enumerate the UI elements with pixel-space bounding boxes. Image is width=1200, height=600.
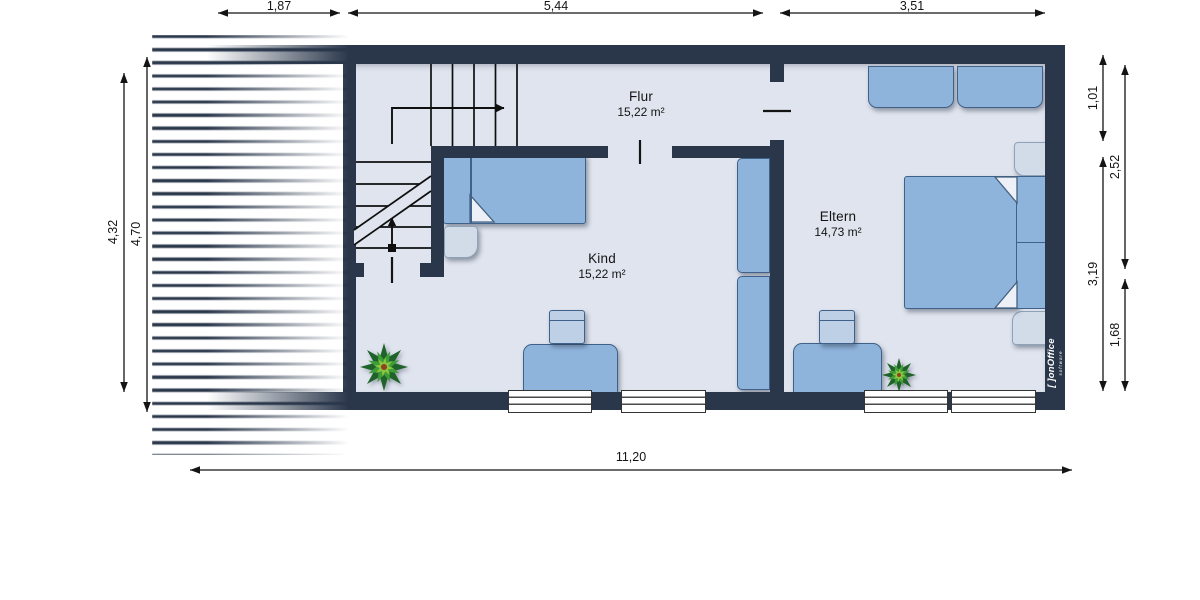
room-area: 14,73 m² xyxy=(814,225,861,239)
nightstand-eltern-top xyxy=(1014,142,1046,176)
nightstand-kind xyxy=(444,226,478,258)
wall-stair-right xyxy=(431,146,444,277)
dim-label-top-3: 3,51 xyxy=(900,0,924,13)
dim-label-right-4: 1,68 xyxy=(1108,323,1122,347)
wardrobe-kind-2 xyxy=(737,276,770,390)
dim-label-right-3: 3,19 xyxy=(1086,262,1100,286)
dim-label-right-1: 1,01 xyxy=(1086,86,1100,110)
plant-kind xyxy=(360,343,408,391)
chair-eltern-backrest xyxy=(820,320,854,321)
room-name: Eltern xyxy=(814,209,861,224)
wall-flur-eltern-stub xyxy=(770,64,784,82)
wardrobe-eltern-2 xyxy=(957,66,1043,108)
onoffice-logo-tagline: software xyxy=(1056,323,1066,403)
bed-kind xyxy=(443,154,586,224)
bed-eltern-pillows xyxy=(904,176,1046,309)
floor-plan-canvas: Flur 15,22 m² Kind 15,22 m² Eltern 14,73… xyxy=(0,0,1200,600)
dim-label-bottom-1: 11,20 xyxy=(616,450,646,464)
dim-label-top-1: 1,87 xyxy=(267,0,291,13)
room-name: Kind xyxy=(578,251,625,266)
window-eltern-2 xyxy=(951,390,1036,413)
window-kind-2 xyxy=(621,390,706,413)
bed-kind-head-divider xyxy=(470,155,472,223)
wall-flur-kind-left xyxy=(431,146,608,158)
desk-kind xyxy=(523,344,618,393)
desk-eltern xyxy=(793,343,882,393)
wall-stair-left xyxy=(343,64,356,392)
room-label-eltern: Eltern 14,73 m² xyxy=(814,209,861,239)
room-area: 15,22 m² xyxy=(617,105,664,119)
onoffice-logo: [ ]onOffice software xyxy=(1045,323,1065,403)
bed-eltern xyxy=(904,176,1046,309)
dim-label-right-2: 2,52 xyxy=(1108,155,1122,179)
wall-kind-eltern xyxy=(770,140,784,392)
plant-eltern xyxy=(882,358,916,392)
wardrobe-eltern-1 xyxy=(868,66,954,108)
room-label-flur: Flur 15,22 m² xyxy=(617,89,664,119)
wall-stair-door-left xyxy=(343,263,364,277)
chair-kind-backrest xyxy=(550,320,584,321)
room-area: 15,22 m² xyxy=(578,267,625,281)
chair-kind xyxy=(549,310,585,344)
dim-label-left-2: 4,70 xyxy=(129,222,143,246)
chair-eltern xyxy=(819,310,855,344)
window-eltern-1 xyxy=(864,390,948,413)
room-label-kind: Kind 15,22 m² xyxy=(578,251,625,281)
wall-flur-kind-right xyxy=(672,146,784,158)
wall-stair-door-right xyxy=(420,263,444,277)
room-name: Flur xyxy=(617,89,664,104)
nightstand-eltern-bottom xyxy=(1012,311,1046,345)
wall-top xyxy=(200,45,1065,64)
dim-label-left-1: 4,32 xyxy=(106,220,120,244)
wardrobe-kind-1 xyxy=(737,158,770,273)
dim-label-top-2: 5,44 xyxy=(544,0,568,13)
bed-kind-duvet-fold xyxy=(444,155,585,223)
window-kind-1 xyxy=(508,390,592,413)
